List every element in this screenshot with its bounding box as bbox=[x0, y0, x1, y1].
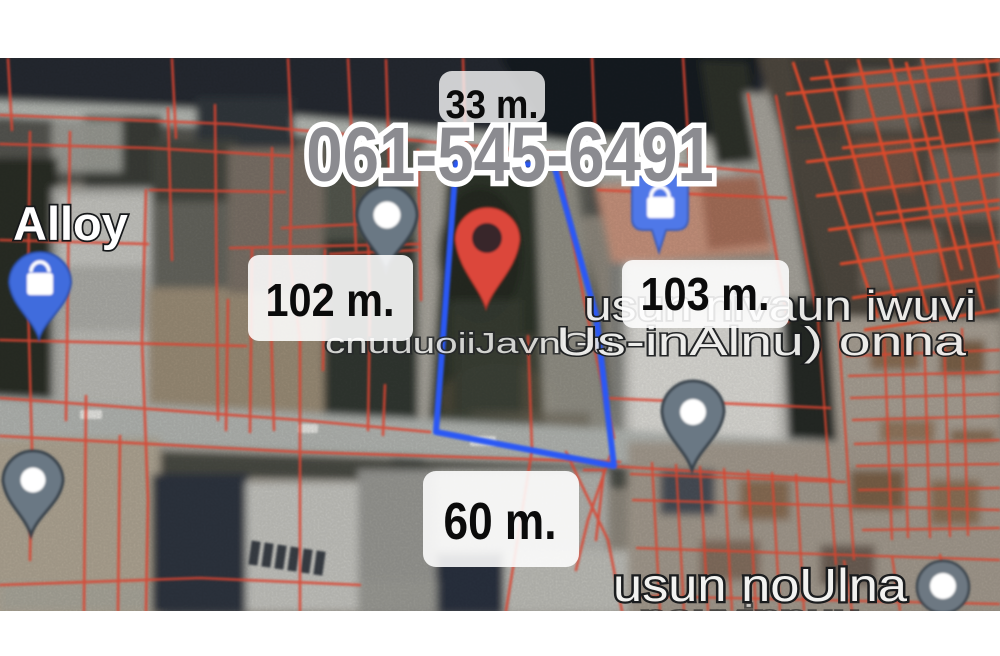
svg-text:Alloy: Alloy bbox=[13, 197, 128, 250]
svg-text:103 m.: 103 m. bbox=[641, 268, 770, 320]
svg-text:60 m.: 60 m. bbox=[444, 493, 557, 551]
svg-text:102 m.: 102 m. bbox=[266, 274, 395, 326]
svg-text:usun noUlna: usun noUlna bbox=[613, 559, 907, 611]
svg-text:061-545-6491: 061-545-6491 bbox=[306, 112, 713, 198]
